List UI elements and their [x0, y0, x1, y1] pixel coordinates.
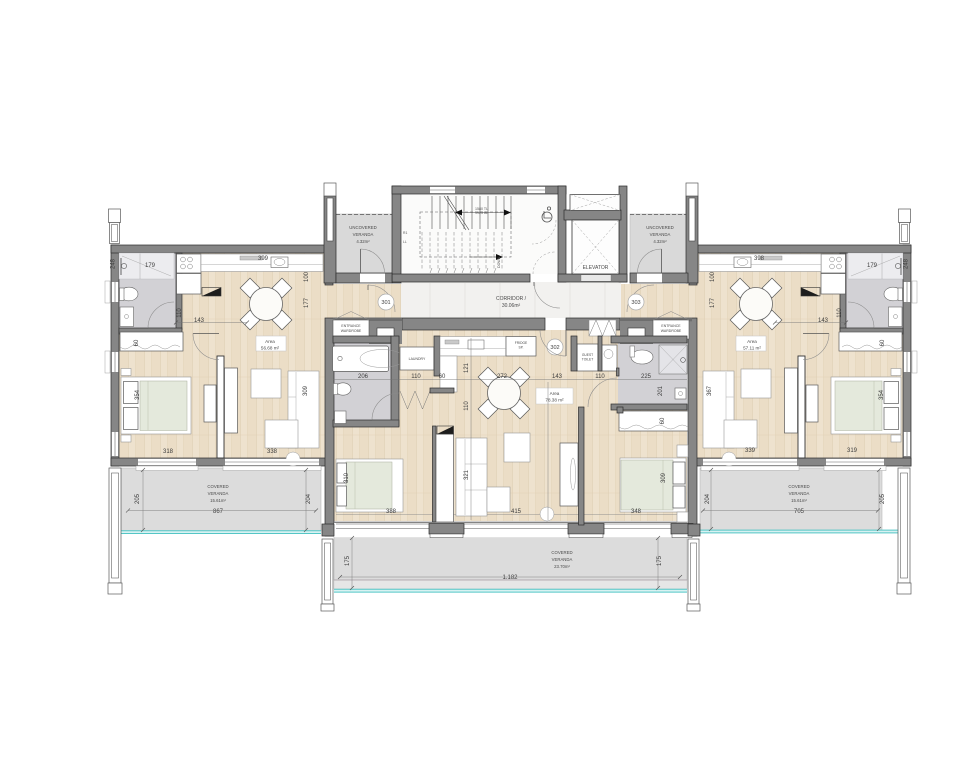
svg-text:301: 301 [381, 300, 390, 306]
svg-text:110: 110 [177, 308, 183, 318]
svg-text:GUEST: GUEST [582, 353, 593, 357]
svg-text:COVERED: COVERED [551, 550, 572, 555]
svg-text:175: 175 [345, 555, 351, 566]
svg-text:VERANDA: VERANDA [353, 232, 374, 237]
svg-text:205: 205 [880, 493, 886, 504]
svg-text:354: 354 [135, 389, 141, 400]
svg-text:110: 110 [595, 374, 605, 380]
svg-text:225: 225 [641, 374, 652, 380]
svg-text:ELEVATOR: ELEVATOR [583, 265, 609, 271]
svg-text:56.68 m²: 56.68 m² [261, 346, 280, 351]
svg-text:398: 398 [754, 256, 765, 262]
svg-text:WARDROBE: WARDROBE [661, 329, 682, 333]
svg-text:LAUNDRY: LAUNDRY [409, 357, 426, 361]
svg-text:309: 309 [661, 472, 667, 483]
svg-text:205: 205 [135, 493, 141, 504]
svg-text:110: 110 [464, 401, 470, 411]
svg-text:ENTRANCE: ENTRANCE [661, 324, 681, 328]
svg-text:272: 272 [497, 374, 508, 380]
svg-text:302: 302 [550, 345, 559, 351]
svg-text:COVERED: COVERED [207, 484, 228, 489]
svg-text:CORRIDOR /: CORRIDOR / [496, 296, 527, 302]
svg-text:Area: Area [747, 339, 757, 344]
svg-text:177: 177 [304, 297, 310, 308]
svg-text:R1: R1 [403, 231, 407, 235]
svg-text:415: 415 [511, 509, 522, 515]
svg-text:110: 110 [837, 308, 843, 318]
svg-text:LL: LL [403, 240, 407, 244]
svg-text:248: 248 [904, 258, 910, 269]
svg-text:143: 143 [552, 374, 563, 380]
svg-text:ENTRANCE: ENTRANCE [341, 324, 361, 328]
svg-text:WARDROBE: WARDROBE [341, 329, 362, 333]
svg-text:60: 60 [660, 417, 666, 424]
svg-text:321: 321 [464, 469, 470, 480]
svg-text:204: 204 [306, 493, 312, 504]
svg-text:110: 110 [411, 374, 421, 380]
svg-text:143: 143 [194, 318, 205, 324]
svg-text:15.61m²: 15.61m² [210, 498, 226, 503]
svg-text:201: 201 [658, 385, 664, 396]
svg-text:303: 303 [631, 300, 640, 306]
svg-text:121: 121 [464, 362, 470, 373]
svg-text:30.06m²: 30.06m² [502, 303, 521, 309]
svg-text:309: 309 [303, 385, 309, 396]
svg-text:705: 705 [794, 509, 805, 515]
svg-text:60: 60 [880, 339, 886, 346]
svg-text:339: 339 [745, 448, 756, 454]
svg-text:15.61m²: 15.61m² [791, 498, 807, 503]
svg-text:SP.: SP. [519, 346, 524, 350]
svg-text:COVERED: COVERED [788, 484, 809, 489]
svg-text:338: 338 [267, 449, 278, 455]
svg-text:VERANDA: VERANDA [650, 232, 671, 237]
svg-text:4.32m²: 4.32m² [653, 239, 667, 244]
svg-text:310: 310 [344, 472, 350, 483]
svg-text:Area: Area [265, 339, 275, 344]
svg-text:100: 100 [710, 271, 716, 282]
svg-text:1.182: 1.182 [502, 575, 518, 581]
svg-text:206: 206 [358, 374, 369, 380]
svg-text:VERANDA: VERANDA [552, 557, 573, 562]
svg-text:367: 367 [707, 385, 713, 396]
svg-text:60: 60 [439, 374, 446, 380]
svg-text:UNCOVERED: UNCOVERED [646, 225, 673, 230]
svg-text:867: 867 [213, 509, 224, 515]
svg-text:388: 388 [386, 509, 397, 515]
svg-text:UNCOVERED: UNCOVERED [349, 225, 376, 230]
svg-text:179: 179 [145, 263, 156, 269]
svg-text:319: 319 [847, 448, 858, 454]
svg-text:4.32m²: 4.32m² [356, 239, 370, 244]
svg-text:23.70m²: 23.70m² [554, 564, 570, 569]
svg-text:100: 100 [304, 271, 310, 282]
svg-text:DOWN: DOWN [497, 256, 501, 268]
svg-text:348: 348 [631, 509, 642, 515]
svg-text:204: 204 [705, 493, 711, 504]
svg-text:399: 399 [258, 256, 269, 262]
svg-text:TOILET: TOILET [582, 358, 593, 362]
svg-text:60: 60 [134, 339, 140, 346]
svg-text:Area: Area [550, 391, 560, 396]
svg-text:VERANDA: VERANDA [789, 491, 810, 496]
svg-text:1925 BL: 1925 BL [475, 211, 488, 215]
svg-text:143: 143 [818, 318, 829, 324]
svg-text:177: 177 [710, 297, 716, 308]
svg-text:248: 248 [111, 258, 117, 269]
svg-text:FRIDGE: FRIDGE [515, 341, 528, 345]
svg-text:VERANDA: VERANDA [208, 491, 229, 496]
svg-text:57.11 m²: 57.11 m² [743, 346, 761, 351]
svg-text:354: 354 [879, 389, 885, 400]
svg-text:318: 318 [163, 449, 174, 455]
svg-text:179: 179 [867, 263, 878, 269]
